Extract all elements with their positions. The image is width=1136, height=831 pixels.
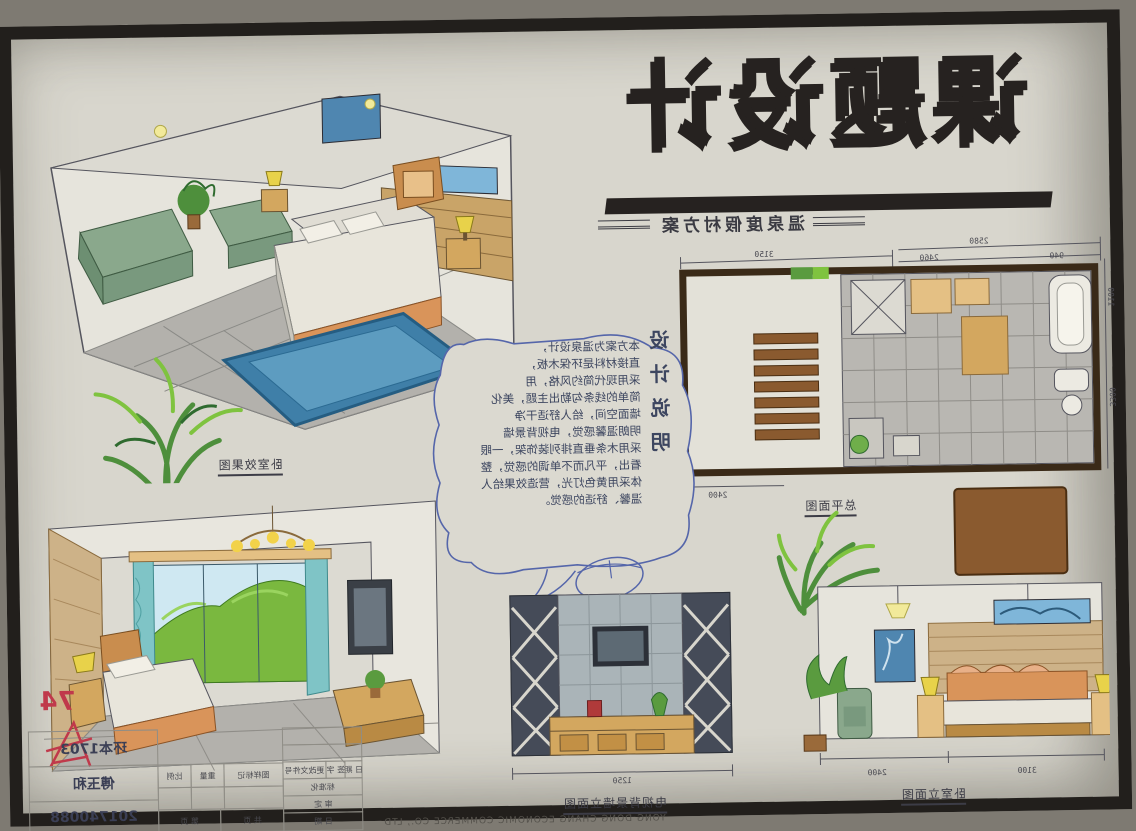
bedroom-elevation-drawing: [778, 574, 1111, 779]
footer-company-strip: YONG DONG CHANG ECONOMIC COMMERCE CO., L…: [383, 813, 666, 827]
date-cell: 日 期: [344, 760, 362, 778]
scale-cell: 比例: [157, 764, 191, 789]
bed-elevation-dim-right: 2400: [868, 768, 887, 777]
board-title-text: 课题设计: [621, 52, 1030, 154]
blank-cell: [224, 785, 284, 809]
plan-dim-top-right: 2580: [969, 236, 988, 245]
plan-dim-top-left: 3150: [754, 250, 773, 259]
blank-cell: [158, 787, 192, 811]
sign-cell: 签 字: [325, 760, 345, 778]
plan-dim-bottom: 2400: [708, 490, 727, 499]
bed-elevation-dim-left: 3100: [1018, 766, 1037, 775]
wardrobe-block: [954, 487, 1067, 575]
board-title: 课题设计: [599, 51, 1053, 208]
plan-dim-seg-a: 2460: [919, 253, 938, 262]
blank-cell: [191, 786, 225, 810]
title-block: 环本1703 傅玉和 201740088 比例 重量 图样标记 第 页 共 页 …: [28, 726, 364, 831]
notes-heading: 设计说明: [646, 329, 677, 469]
photographed-design-board: { "board": { "title": "课题设计", "subtitle"…: [0, 0, 1136, 831]
notes-body: 本方案为温泉设计， 直接材料是环保木板， 采用现代简约风格，用 简单的线条勾勒出…: [448, 338, 643, 511]
bedroom-elevation-label: 卧室立面图: [901, 783, 966, 806]
notes-line: 温馨、舒适的感觉。: [450, 491, 642, 511]
change-no-cell: 更改文件号: [282, 761, 326, 780]
student-id-cell: 201740088: [29, 799, 160, 831]
total-cell: 共 页: [220, 807, 284, 831]
bed-elevation-dim-lines: [820, 749, 1104, 765]
paper-sheet: 卧室效果图 课题设计 温泉度假村方案: [0, 9, 1132, 827]
sheet-cell: 第 页: [158, 808, 221, 831]
tv-elevation-label: 电视背景墙立面图: [563, 791, 667, 815]
plan-dim-seg-b: 940: [1049, 251, 1064, 260]
tv-elevation-dim: 1250: [613, 776, 632, 785]
subtitle-line-left: [598, 220, 650, 230]
class-text: 环本1703: [59, 738, 126, 759]
name-text: 傅玉和: [73, 773, 115, 794]
tv-elevation-label-text: 电视背景墙立面图: [563, 793, 667, 815]
name-cell: 傅玉和: [28, 764, 159, 802]
bedroom-elevation-label-text: 卧室立面图: [901, 785, 966, 806]
score-text: 74: [39, 687, 76, 718]
student-id-text: 201740088: [50, 809, 138, 826]
render1-label: 卧室效果图: [218, 453, 283, 476]
mark-cell: 图样标记: [223, 762, 283, 787]
plan-dim-right-b: 3300: [1108, 387, 1117, 406]
date2-cell: 日 期: [283, 811, 363, 831]
footer-company-text: YONG DONG CHANG ECONOMIC COMMERCE CO., L…: [383, 813, 666, 827]
notes-heading-text: 设计说明: [646, 329, 677, 465]
tv-wall-elevation-drawing: [500, 584, 743, 793]
render1-label-text: 卧室效果图: [218, 455, 283, 476]
class-cell: 环本1703: [28, 729, 159, 767]
plan-dim-right-a: 1100: [1106, 287, 1115, 306]
weight-cell: 重量: [190, 763, 224, 788]
